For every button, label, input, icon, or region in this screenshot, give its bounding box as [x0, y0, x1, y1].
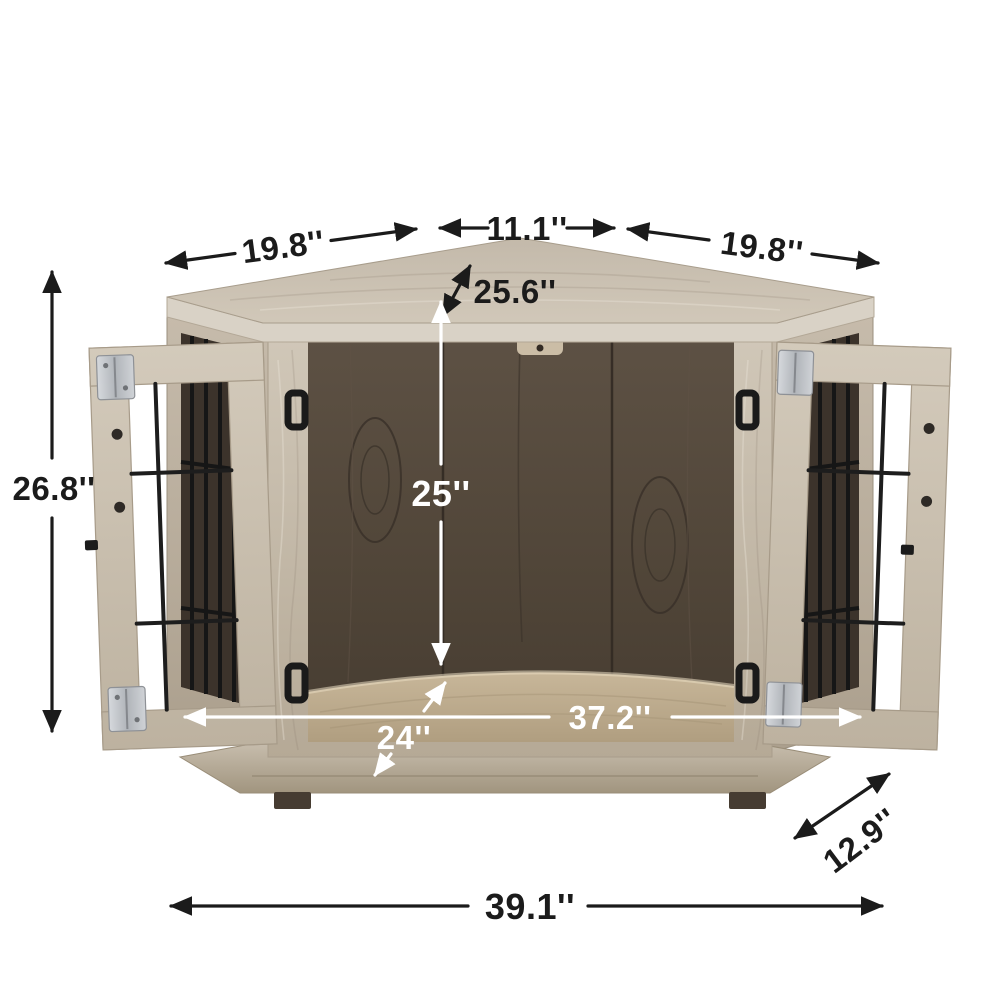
- dim-top-right-label: 19.8'': [718, 224, 805, 272]
- right-door-hinge-top: [777, 350, 814, 395]
- crate-dimension-diagram: 19.8'' 11.1'' 19.8'' 25.6'' 26.8'' 25'': [0, 0, 1000, 1000]
- dim-interior-height-label: 25'': [411, 473, 470, 514]
- dim-top-center-label: 11.1'': [486, 210, 567, 247]
- right-foot: [729, 792, 766, 809]
- dim-side-depth-label: 12.9'': [816, 801, 904, 880]
- dim-interior-width-label: 37.2'': [569, 699, 652, 736]
- dim-top-depth-label: 25.6'': [474, 273, 557, 310]
- diagram-canvas: 19.8'' 11.1'' 19.8'' 25.6'' 26.8'' 25'': [0, 0, 1000, 1000]
- right-door-hinge-bottom: [766, 682, 803, 727]
- left-door-hinge-top: [96, 355, 135, 400]
- dim-overall-width-label: 39.1'': [485, 886, 575, 927]
- dim-opening-depth-label: 24'': [377, 719, 431, 756]
- left-foot: [274, 792, 311, 809]
- left-door-latch-pin: [85, 540, 98, 550]
- corner-pet-crate: [78, 238, 951, 809]
- crate-interior: [308, 339, 734, 742]
- dim-overall-height-label: 26.8'': [13, 470, 96, 507]
- dim-top-left-label: 19.8'': [240, 223, 327, 271]
- left-door-hinge-bottom: [108, 686, 147, 731]
- right-door-latch-pin: [901, 545, 914, 555]
